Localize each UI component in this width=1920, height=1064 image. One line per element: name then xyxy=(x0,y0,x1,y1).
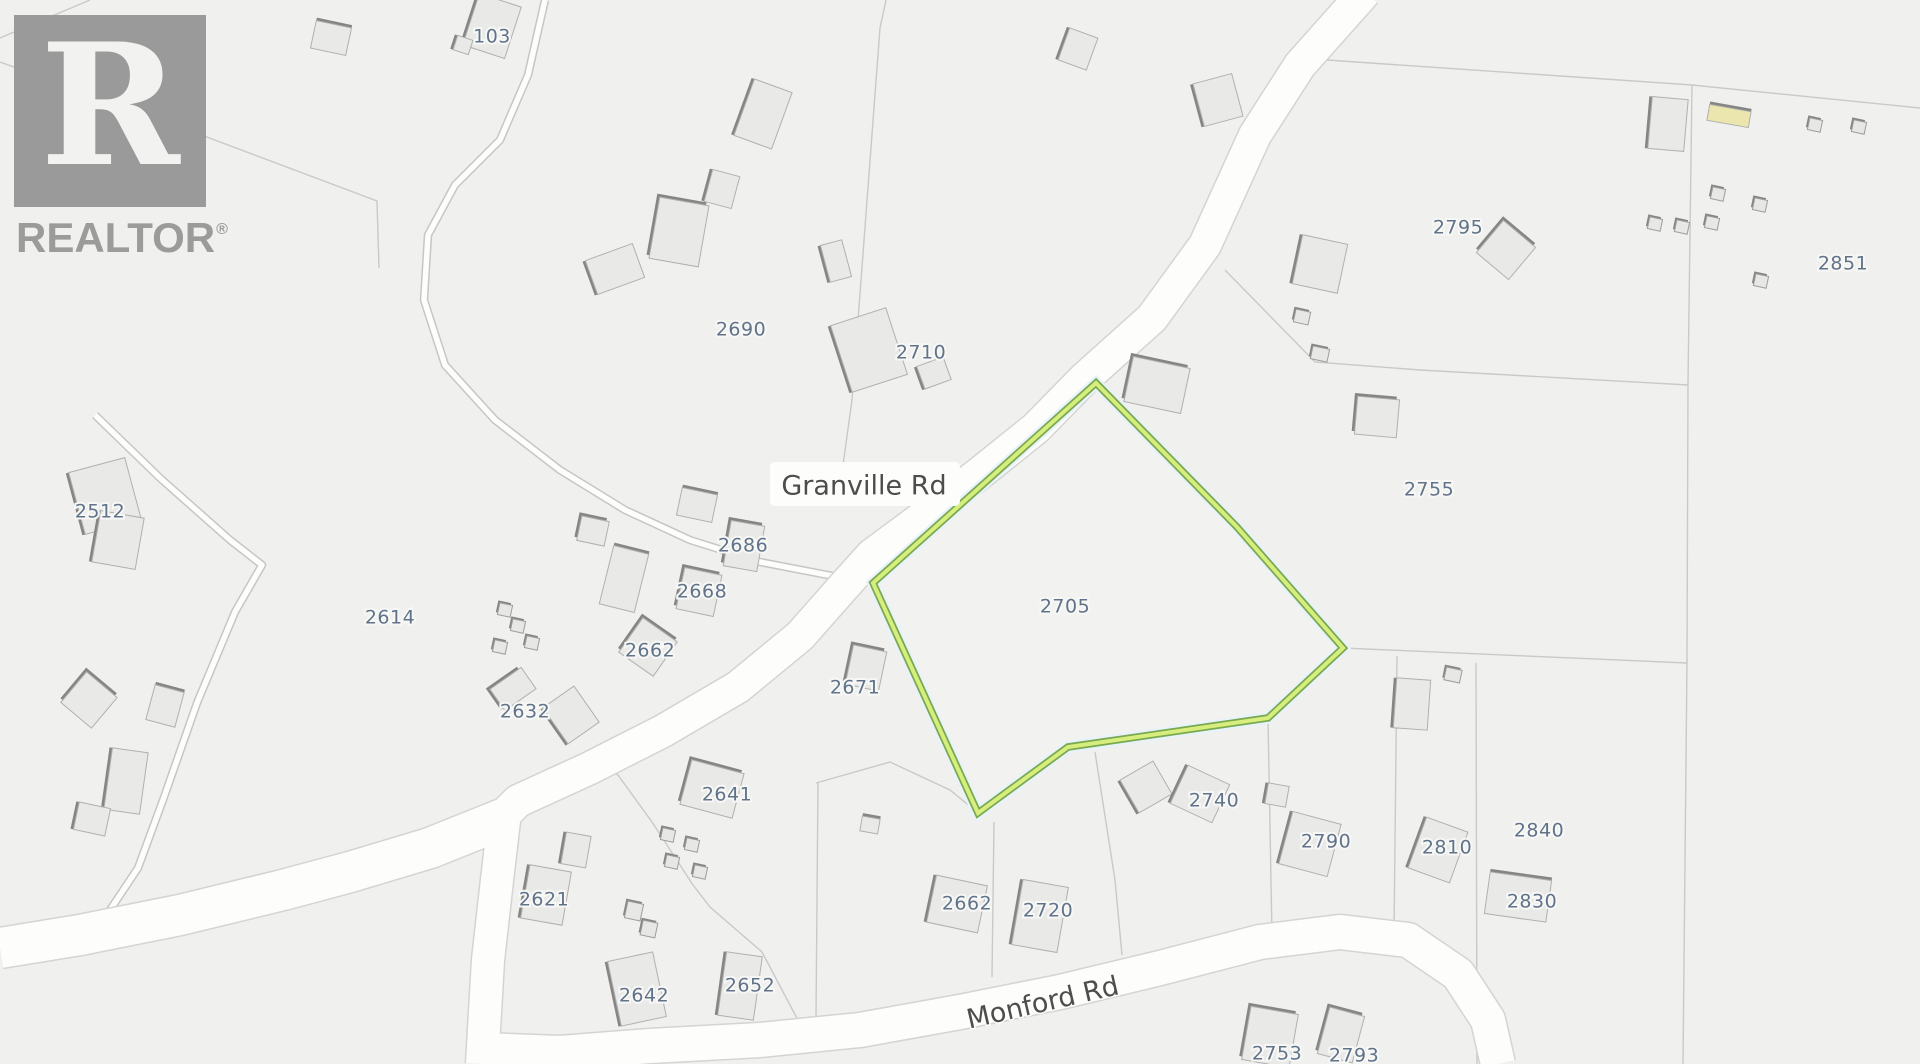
registered-trademark-symbol: ® xyxy=(216,221,228,238)
house xyxy=(1645,96,1688,151)
parcel-label-2686: 2686 xyxy=(718,535,768,557)
house xyxy=(1390,678,1430,730)
parcel-label-2671: 2671 xyxy=(830,677,880,699)
parcel-label-2851: 2851 xyxy=(1818,253,1868,275)
parcel-label-2512: 2512 xyxy=(75,501,125,523)
outbuilding xyxy=(638,918,658,938)
outbuilding-footprint xyxy=(664,855,679,869)
outbuilding-footprint xyxy=(1674,220,1689,234)
house-footprint xyxy=(1292,235,1347,293)
house-footprint xyxy=(1393,678,1430,730)
parcel-label-103: 103 xyxy=(473,26,511,48)
outbuilding-footprint xyxy=(1310,346,1329,362)
parcel-label-2810: 2810 xyxy=(1422,837,1472,859)
house-footprint xyxy=(73,802,110,836)
parcel-label-2614: 2614 xyxy=(365,607,415,629)
house xyxy=(558,832,591,868)
parcel-label-2705: 2705 xyxy=(1040,596,1090,618)
house-footprint xyxy=(649,197,709,267)
outbuilding-footprint xyxy=(524,636,539,650)
parcel-label-2642: 2642 xyxy=(619,985,669,1007)
outbuilding-footprint xyxy=(1752,198,1767,212)
outbuilding-footprint xyxy=(1753,274,1768,288)
realtor-logo: R REALTOR® xyxy=(14,15,214,259)
outbuilding-footprint xyxy=(1444,667,1462,683)
parcel-label-2753: 2753 xyxy=(1252,1043,1302,1064)
outbuilding-footprint xyxy=(1710,187,1725,201)
parcel-label-2740: 2740 xyxy=(1189,790,1239,812)
parcel-label-2641: 2641 xyxy=(702,784,752,806)
parcel-label-2690: 2690 xyxy=(716,319,766,341)
house xyxy=(1289,234,1347,293)
house xyxy=(646,194,709,267)
house-footprint xyxy=(1265,783,1289,807)
parcel-label-2830: 2830 xyxy=(1507,891,1557,913)
house xyxy=(1351,393,1399,438)
realtor-wordmark-text: REALTOR xyxy=(16,214,215,261)
parcel-label-2795: 2795 xyxy=(1433,217,1483,239)
parcel-label-2840: 2840 xyxy=(1514,820,1564,842)
house xyxy=(1262,782,1289,807)
house-footprint xyxy=(1648,97,1688,152)
outbuilding-footprint xyxy=(640,920,658,938)
outbuilding-footprint xyxy=(1647,217,1662,231)
realtor-logo-mark: R xyxy=(14,15,206,207)
outbuilding-footprint xyxy=(684,838,699,852)
parcel-label-2652: 2652 xyxy=(725,975,775,997)
realtor-wordmark: REALTOR® xyxy=(16,209,214,259)
realtor-r-letter: R xyxy=(40,25,180,185)
parcel-label-2710: 2710 xyxy=(896,342,946,364)
map-canvas[interactable]: Granville RdMonford Rd103269027102795285… xyxy=(0,0,1920,1064)
parcel-label-2790: 2790 xyxy=(1301,831,1351,853)
outbuilding-footprint xyxy=(1851,120,1866,134)
outbuilding-footprint xyxy=(497,603,512,617)
parcel-label-2621: 2621 xyxy=(519,889,569,911)
house-footprint xyxy=(561,832,591,868)
house-footprint xyxy=(577,516,610,546)
parcel-label-2793: 2793 xyxy=(1329,1045,1379,1064)
house-footprint xyxy=(1354,396,1399,438)
house xyxy=(860,813,881,834)
parcel-map[interactable]: Granville RdMonford Rd103269027102795285… xyxy=(0,0,1920,1064)
outbuilding-footprint xyxy=(1293,309,1310,325)
parcel-label-2662: 2662 xyxy=(625,640,675,662)
outbuilding-footprint xyxy=(492,640,507,654)
parcel-label-2755: 2755 xyxy=(1404,479,1454,501)
outbuilding-footprint xyxy=(1807,118,1822,132)
outbuilding-footprint xyxy=(692,865,707,879)
parcel-label-2668: 2668 xyxy=(677,581,727,603)
parcel-label-2662: 2662 xyxy=(942,893,992,915)
outbuilding-footprint xyxy=(510,619,525,633)
outbuilding-footprint xyxy=(1704,216,1719,230)
outbuilding-footprint xyxy=(660,828,675,842)
parcel-label-2632: 2632 xyxy=(500,701,550,723)
house-footprint xyxy=(860,816,880,834)
road-label-granville-rd: Granville Rd xyxy=(781,471,946,502)
outbuilding-footprint xyxy=(624,901,643,921)
parcel-label-2720: 2720 xyxy=(1023,900,1073,922)
